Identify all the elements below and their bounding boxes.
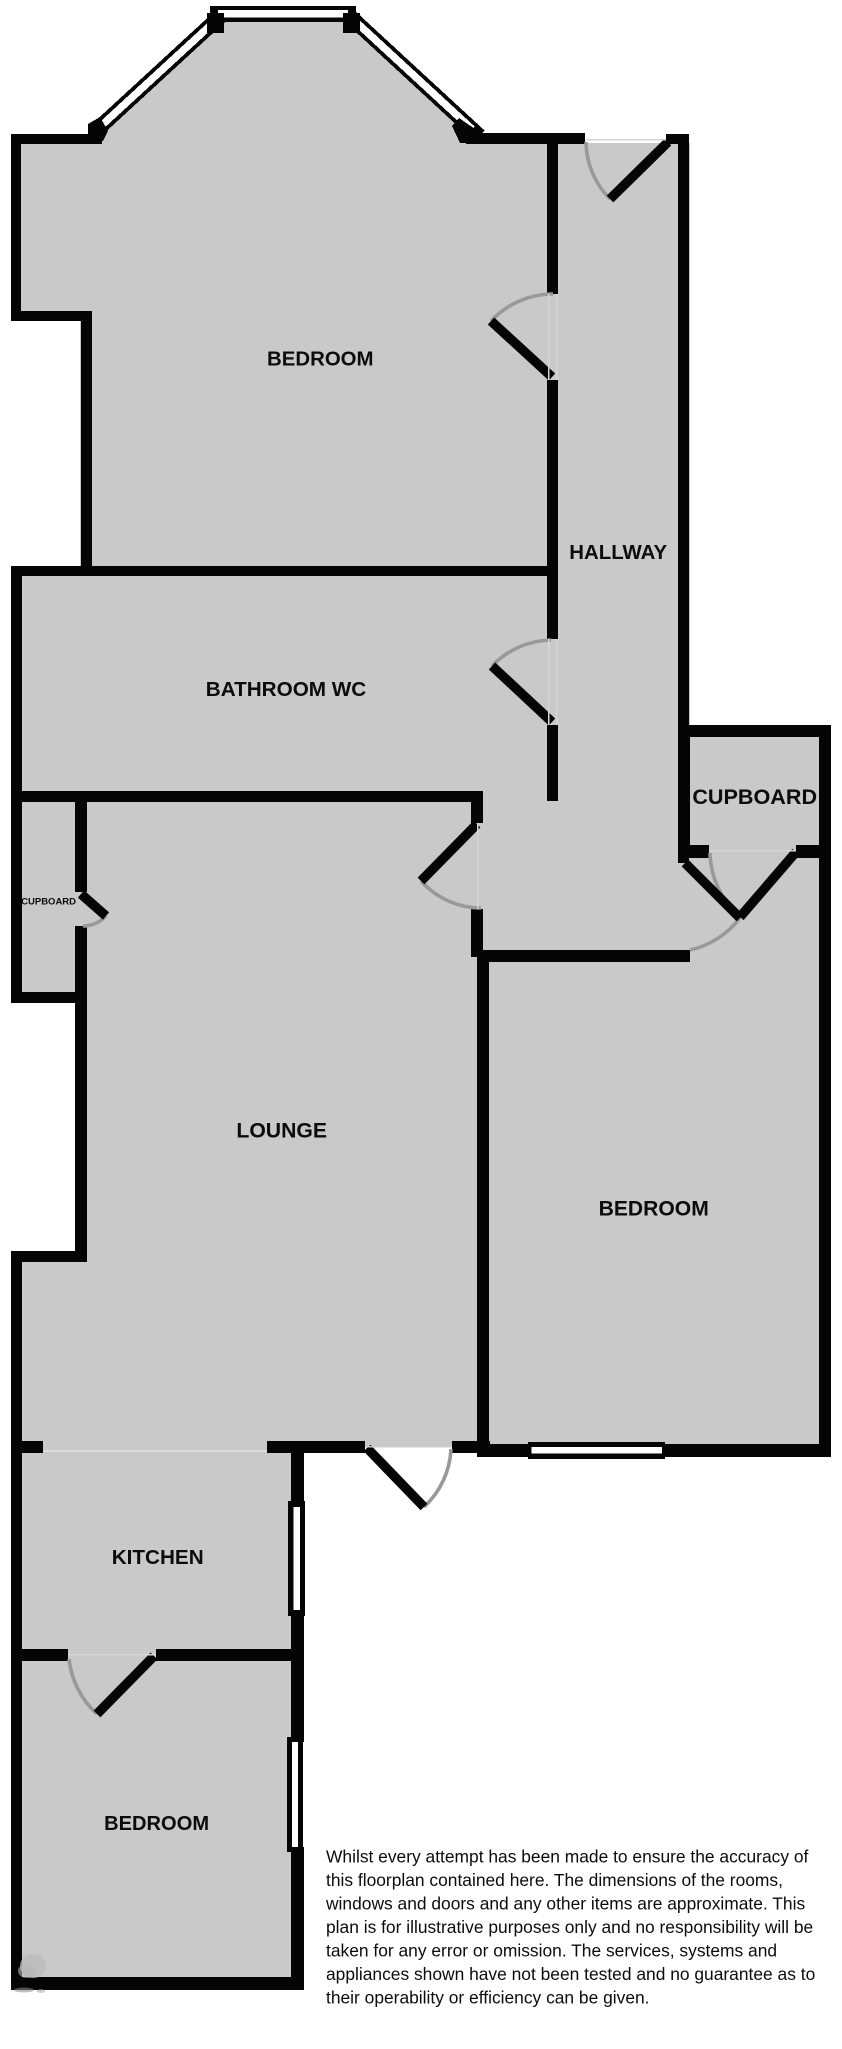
svg-text:appliances shown have not been: appliances shown have not been tested an… xyxy=(326,1964,815,1984)
svg-text:plan is for illustrative purpo: plan is for illustrative purposes only a… xyxy=(326,1917,813,1937)
svg-text:HALLWAY: HALLWAY xyxy=(569,542,667,564)
svg-text:LOUNGE: LOUNGE xyxy=(236,1119,327,1142)
svg-text:CUPBOARD: CUPBOARD xyxy=(21,897,76,908)
svg-text:BEDROOM: BEDROOM xyxy=(267,349,373,371)
svg-text:this floorplan contained here.: this floorplan contained here. The dimen… xyxy=(326,1870,783,1890)
svg-text:BEDROOM: BEDROOM xyxy=(599,1198,709,1221)
svg-text:CUPBOARD: CUPBOARD xyxy=(692,784,817,809)
svg-text:BATHROOM WC: BATHROOM WC xyxy=(206,678,367,701)
svg-text:their operability or efficienc: their operability or efficiency can be g… xyxy=(326,1988,650,2008)
svg-text:taken for any error or omissio: taken for any error or omission. The ser… xyxy=(326,1941,777,1961)
svg-text:windows and doors and any othe: windows and doors and any other items ar… xyxy=(325,1894,805,1914)
svg-text:KITCHEN: KITCHEN xyxy=(112,1546,204,1569)
svg-text:BEDROOM: BEDROOM xyxy=(104,1813,209,1835)
svg-text:Whilst every attempt has been: Whilst every attempt has been made to en… xyxy=(326,1847,809,1867)
